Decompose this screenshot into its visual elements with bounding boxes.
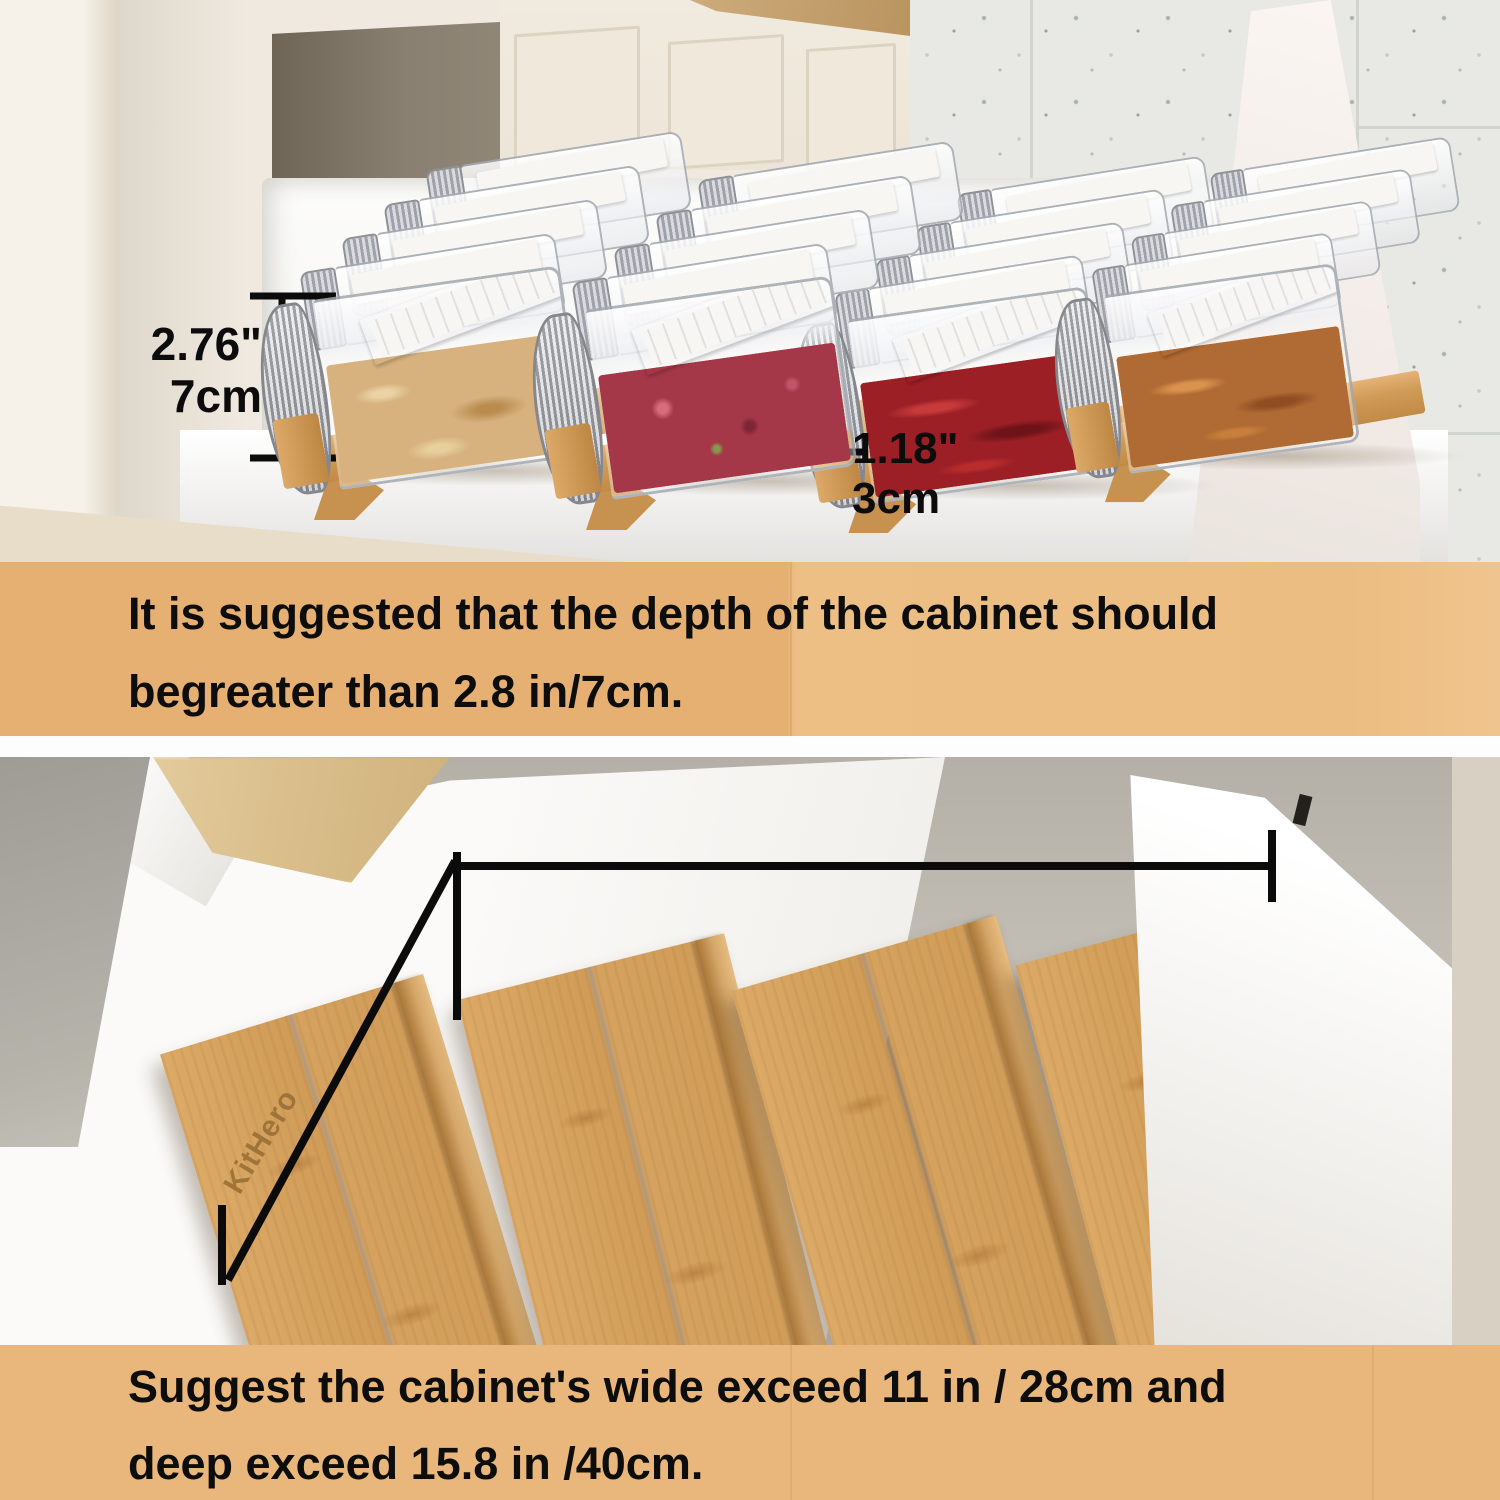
dimension-lines-bottom: [0, 757, 1500, 1345]
jar-content-roses: [598, 342, 851, 493]
photo-spice-jars-in-drawer: 2.76" 7cm 1.18" 3cm: [0, 0, 1500, 562]
note-size-line-2: deep exceed 15.8 in /40cm.: [128, 1438, 703, 1490]
section-gap: [0, 736, 1500, 757]
note-size-banner: Suggest the cabinet's wide exceed 11 in …: [0, 1345, 1500, 1500]
note-depth-line-2: begreater than 2.8 in/7cm.: [128, 666, 683, 718]
note-depth-line-1: It is suggested that the depth of the ca…: [128, 588, 1218, 640]
note-depth-banner: It is suggested that the depth of the ca…: [0, 562, 1500, 736]
jar-body: [586, 275, 858, 500]
banner-seam: [1372, 1345, 1374, 1500]
photo-bamboo-shelves-in-drawer: KitHero 15.8"/40cm 11" 28cm: [0, 757, 1500, 1345]
note-size-line-1: Suggest the cabinet's wide exceed 11 in …: [128, 1361, 1227, 1413]
product-dimension-guide: 2.76" 7cm 1.18" 3cm It is suggested that…: [0, 0, 1500, 1500]
dimension-line-width: [228, 861, 455, 1280]
